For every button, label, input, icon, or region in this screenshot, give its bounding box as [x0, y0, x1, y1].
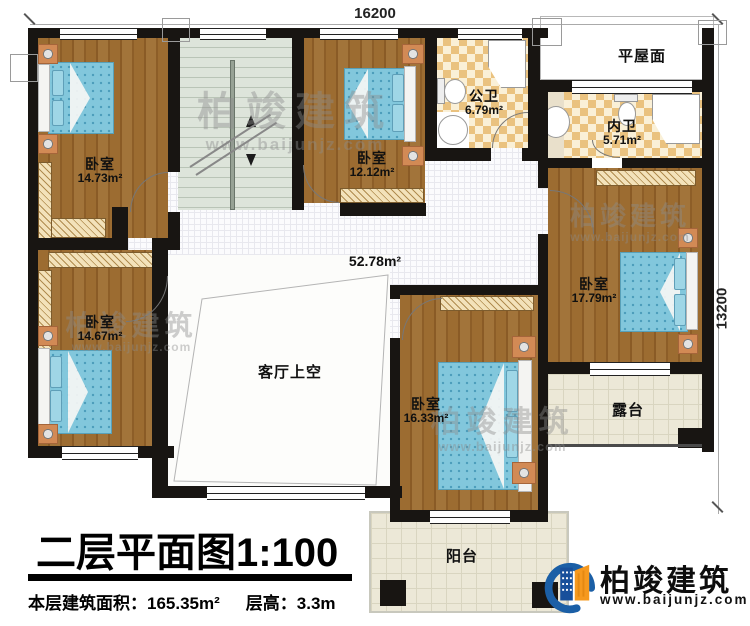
dimension-top: 16200 [330, 5, 420, 22]
toilet-tank-icon [614, 94, 638, 102]
dimension-marker [532, 18, 562, 46]
nightstand [512, 462, 536, 484]
room-name: 卧室 [328, 150, 416, 166]
wardrobe [48, 218, 106, 238]
nightstand [38, 134, 58, 154]
room-name: 阳台 [416, 548, 508, 565]
outside-area [28, 458, 160, 498]
bed-headboard [404, 66, 416, 142]
window [590, 362, 670, 376]
floor-info-line: 本层建筑面积：165.35m²层高：3.3m [28, 589, 336, 614]
wall-segment [538, 286, 548, 522]
room-name: 卧室 [56, 156, 144, 172]
nightstand [402, 44, 424, 64]
balcony-label: 阳台 [416, 548, 508, 565]
room-label-bath-public: 公卫 6.79m² [440, 88, 528, 118]
room-name: 卧室 [548, 276, 640, 292]
room-area: 6.79m² [440, 104, 528, 118]
bed-headboard [686, 252, 698, 330]
bed-pillow [52, 100, 64, 126]
bed-pillow [50, 356, 62, 388]
window [60, 28, 137, 40]
room-name: 平屋面 [598, 48, 686, 65]
room-label-bedroom-top-left: 卧室 14.73m² [56, 156, 144, 186]
bed-pillow [50, 390, 62, 422]
room-name: 客厅上空 [234, 364, 346, 381]
nightstand [38, 44, 58, 64]
room-label-flat-roof: 平屋面 [598, 48, 686, 65]
wall-segment [622, 158, 702, 168]
room-name: 公卫 [440, 88, 528, 104]
brand-logo-icon [538, 556, 596, 614]
bed-pillow [674, 258, 686, 290]
room-area: 12.12m² [328, 166, 416, 180]
wall-segment [390, 338, 400, 522]
bed-pillow [506, 416, 518, 458]
void-label: 客厅上空 [234, 364, 346, 381]
floor-height-label: 层高： [246, 594, 297, 613]
window [62, 446, 138, 460]
wall-segment [538, 234, 548, 286]
room-name: 内卫 [578, 118, 666, 134]
room-area: 14.67m² [56, 330, 144, 344]
room-area: 14.73m² [56, 172, 144, 186]
wardrobe [340, 188, 424, 203]
room-name: 卧室 [380, 396, 472, 412]
bed-headboard [38, 64, 50, 132]
dimension-right: 13200 [714, 269, 731, 349]
wall-segment [425, 148, 491, 161]
page-title: 二层平面图1:100 [36, 520, 376, 578]
wall-segment [112, 207, 128, 250]
window [572, 80, 692, 94]
room-label-bedroom-bottom-left: 卧室 14.67m² [56, 314, 144, 344]
sink-icon [438, 115, 468, 145]
nightstand [678, 334, 698, 354]
room-label-bedroom-right: 卧室 17.79m² [548, 276, 640, 306]
bed-headboard [38, 348, 50, 436]
dimension-marker [162, 18, 190, 42]
wall-segment [425, 28, 437, 160]
wardrobe [38, 162, 52, 240]
wall-segment [292, 38, 304, 210]
stair-rail [230, 60, 235, 210]
floor-area-value: 165.35m² [147, 594, 220, 613]
title-rule [28, 574, 352, 581]
room-area: 5.71m² [578, 134, 666, 148]
bed-pillow [392, 74, 404, 102]
window [207, 486, 365, 500]
room-name: 露台 [582, 402, 674, 419]
wardrobe [440, 296, 534, 311]
dimension-line-top [30, 24, 722, 25]
stair-arrow-down [246, 154, 256, 171]
floor-area-label: 本层建筑面积： [28, 594, 147, 613]
bed-pillow [506, 370, 518, 412]
wall-segment [702, 28, 714, 452]
room-name: 卧室 [56, 314, 144, 330]
floor-plan-canvas: 柏竣建筑 www.baijunjz.com 柏竣建筑 www.baijunjz.… [0, 0, 750, 626]
terrace-label: 露台 [582, 402, 674, 419]
room-area: 17.79m² [548, 292, 640, 306]
window [200, 28, 266, 40]
wall-segment [340, 203, 426, 216]
window [320, 28, 398, 40]
nightstand [38, 326, 58, 346]
wall-segment [28, 238, 124, 250]
dimension-marker [10, 54, 38, 82]
nightstand [38, 424, 58, 444]
wardrobe [596, 170, 696, 186]
wall-segment [390, 285, 548, 295]
room-label-bedroom-bottom-middle: 卧室 16.33m² [380, 396, 472, 426]
terrace-edge [548, 444, 702, 447]
wall-segment [390, 285, 400, 299]
room-area: 16.33m² [380, 412, 472, 426]
hall-area-label: 52.78m² [330, 253, 420, 269]
wall-segment [168, 212, 180, 250]
wall-segment [168, 38, 180, 172]
room-label-bedroom-top-middle: 卧室 12.12m² [328, 150, 416, 180]
bed-pillow [52, 70, 64, 96]
window [458, 28, 522, 40]
nightstand [678, 228, 698, 248]
dimension-marker [698, 20, 727, 45]
window [430, 510, 510, 524]
brand-url: www.baijunjz.com [600, 592, 749, 607]
wardrobe [48, 252, 154, 268]
bed-pillow [674, 294, 686, 326]
bed-pillow [392, 104, 404, 132]
wall-segment [538, 92, 548, 188]
floor-height-value: 3.3m [297, 594, 336, 613]
nightstand [512, 336, 536, 358]
balcony-pillar [380, 580, 406, 606]
room-label-bath-inner: 内卫 5.71m² [578, 118, 666, 148]
